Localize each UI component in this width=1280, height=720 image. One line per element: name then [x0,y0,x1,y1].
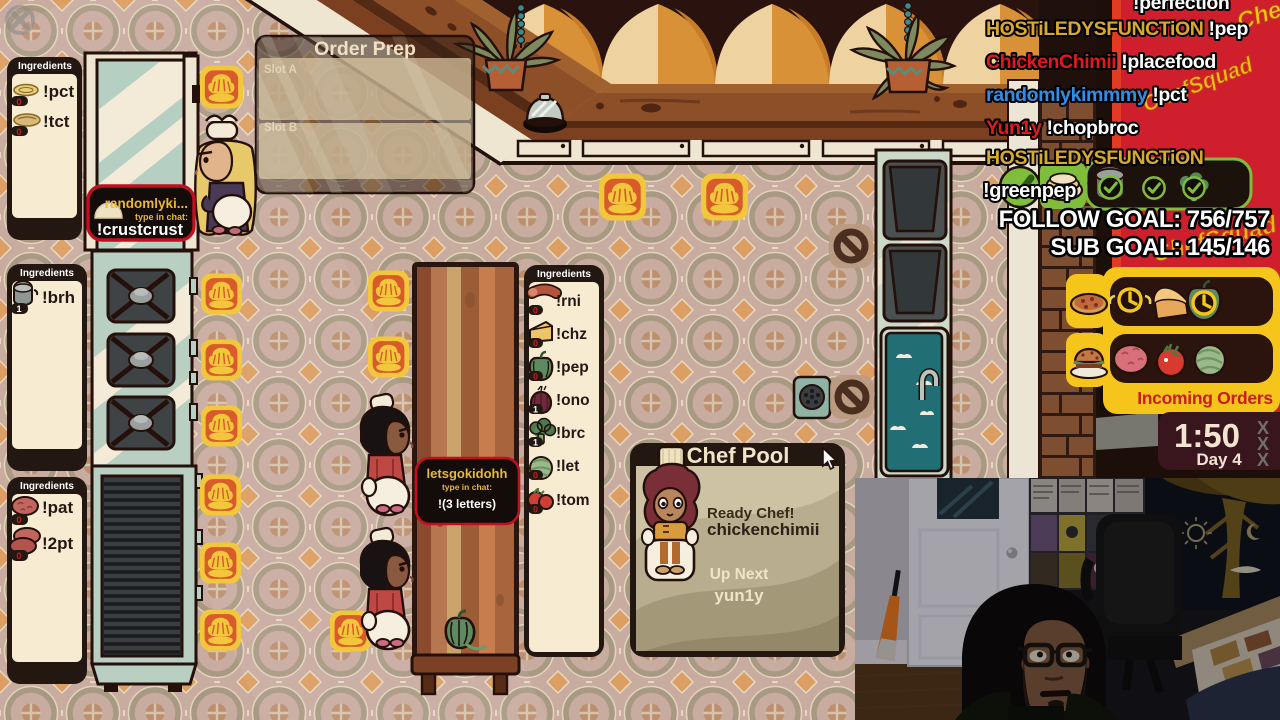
svg-text:HOSTiLEDYSFUNCTiON !pep: HOSTiLEDYSFUNCTiON !pep [986,18,1249,40]
svg-text:Yun1y !chopbroc: Yun1y !chopbroc [986,117,1139,139]
svg-text:!pat: !pat [42,498,74,517]
svg-text:SUB GOAL: 145/146: SUB GOAL: 145/146 [1050,234,1270,261]
svg-text:!ono: !ono [556,392,590,409]
svg-text:Ingredients: Ingredients [20,268,74,279]
svg-text:!tct: !tct [43,112,70,131]
svg-text:1: 1 [16,304,22,315]
svg-text:!crustcrust: !crustcrust [97,221,184,239]
svg-text:!brc: !brc [556,425,586,442]
svg-text:Up Next: Up Next [710,566,769,583]
svg-text:0: 0 [533,471,538,481]
svg-text:!pct: !pct [43,82,75,101]
svg-text:letsgokidohh: letsgokidohh [427,466,508,481]
svg-text:0: 0 [16,97,21,108]
svg-text:Ingredients: Ingredients [537,269,591,280]
svg-text:randomlykimmmy !pct: randomlykimmmy !pct [986,84,1187,106]
svg-text:!greenpep: !greenpep [983,180,1076,202]
svg-text:0: 0 [533,505,538,515]
svg-text:!rni: !rni [556,293,581,310]
svg-text:0: 0 [533,339,538,349]
svg-text:!tom: !tom [556,492,590,509]
svg-text:0: 0 [16,551,21,562]
svg-text:Day 4: Day 4 [1196,450,1242,469]
svg-text:!brh: !brh [42,288,75,307]
svg-text:yun1y: yun1y [714,586,764,605]
svg-text:1: 1 [533,438,538,448]
svg-text:!2pt: !2pt [42,534,74,553]
svg-text:randomlyki...: randomlyki... [105,196,188,211]
svg-text:FOLLOW GOAL: 756/757: FOLLOW GOAL: 756/757 [999,206,1271,233]
svg-text:X: X [1257,450,1269,470]
svg-text:!chz: !chz [556,326,587,343]
svg-text:ChickenChimii !placefood: ChickenChimii !placefood [986,51,1216,73]
svg-text:chickenchimii: chickenchimii [707,520,819,539]
svg-text:0: 0 [16,127,21,138]
svg-text:HOSTiLEDYSFUNCTiON: HOSTiLEDYSFUNCTiON [986,147,1203,169]
svg-text:Ingredients: Ingredients [20,481,74,492]
svg-text:0: 0 [533,306,538,316]
svg-text:Ingredients: Ingredients [18,61,72,72]
svg-text:!(3 letters): !(3 letters) [438,497,496,511]
svg-text:Chef Pool: Chef Pool [687,443,790,468]
svg-text:!perfection: !perfection [1133,0,1229,14]
svg-text:0: 0 [16,515,21,526]
svg-text:Incoming Orders: Incoming Orders [1137,388,1273,408]
svg-text:1:50: 1:50 [1174,417,1240,454]
svg-text:!let: !let [556,458,579,475]
svg-text:1: 1 [533,405,538,415]
svg-text:!pep: !pep [556,359,589,376]
svg-text:type in chat:: type in chat: [442,482,492,492]
svg-text:0: 0 [533,372,538,382]
